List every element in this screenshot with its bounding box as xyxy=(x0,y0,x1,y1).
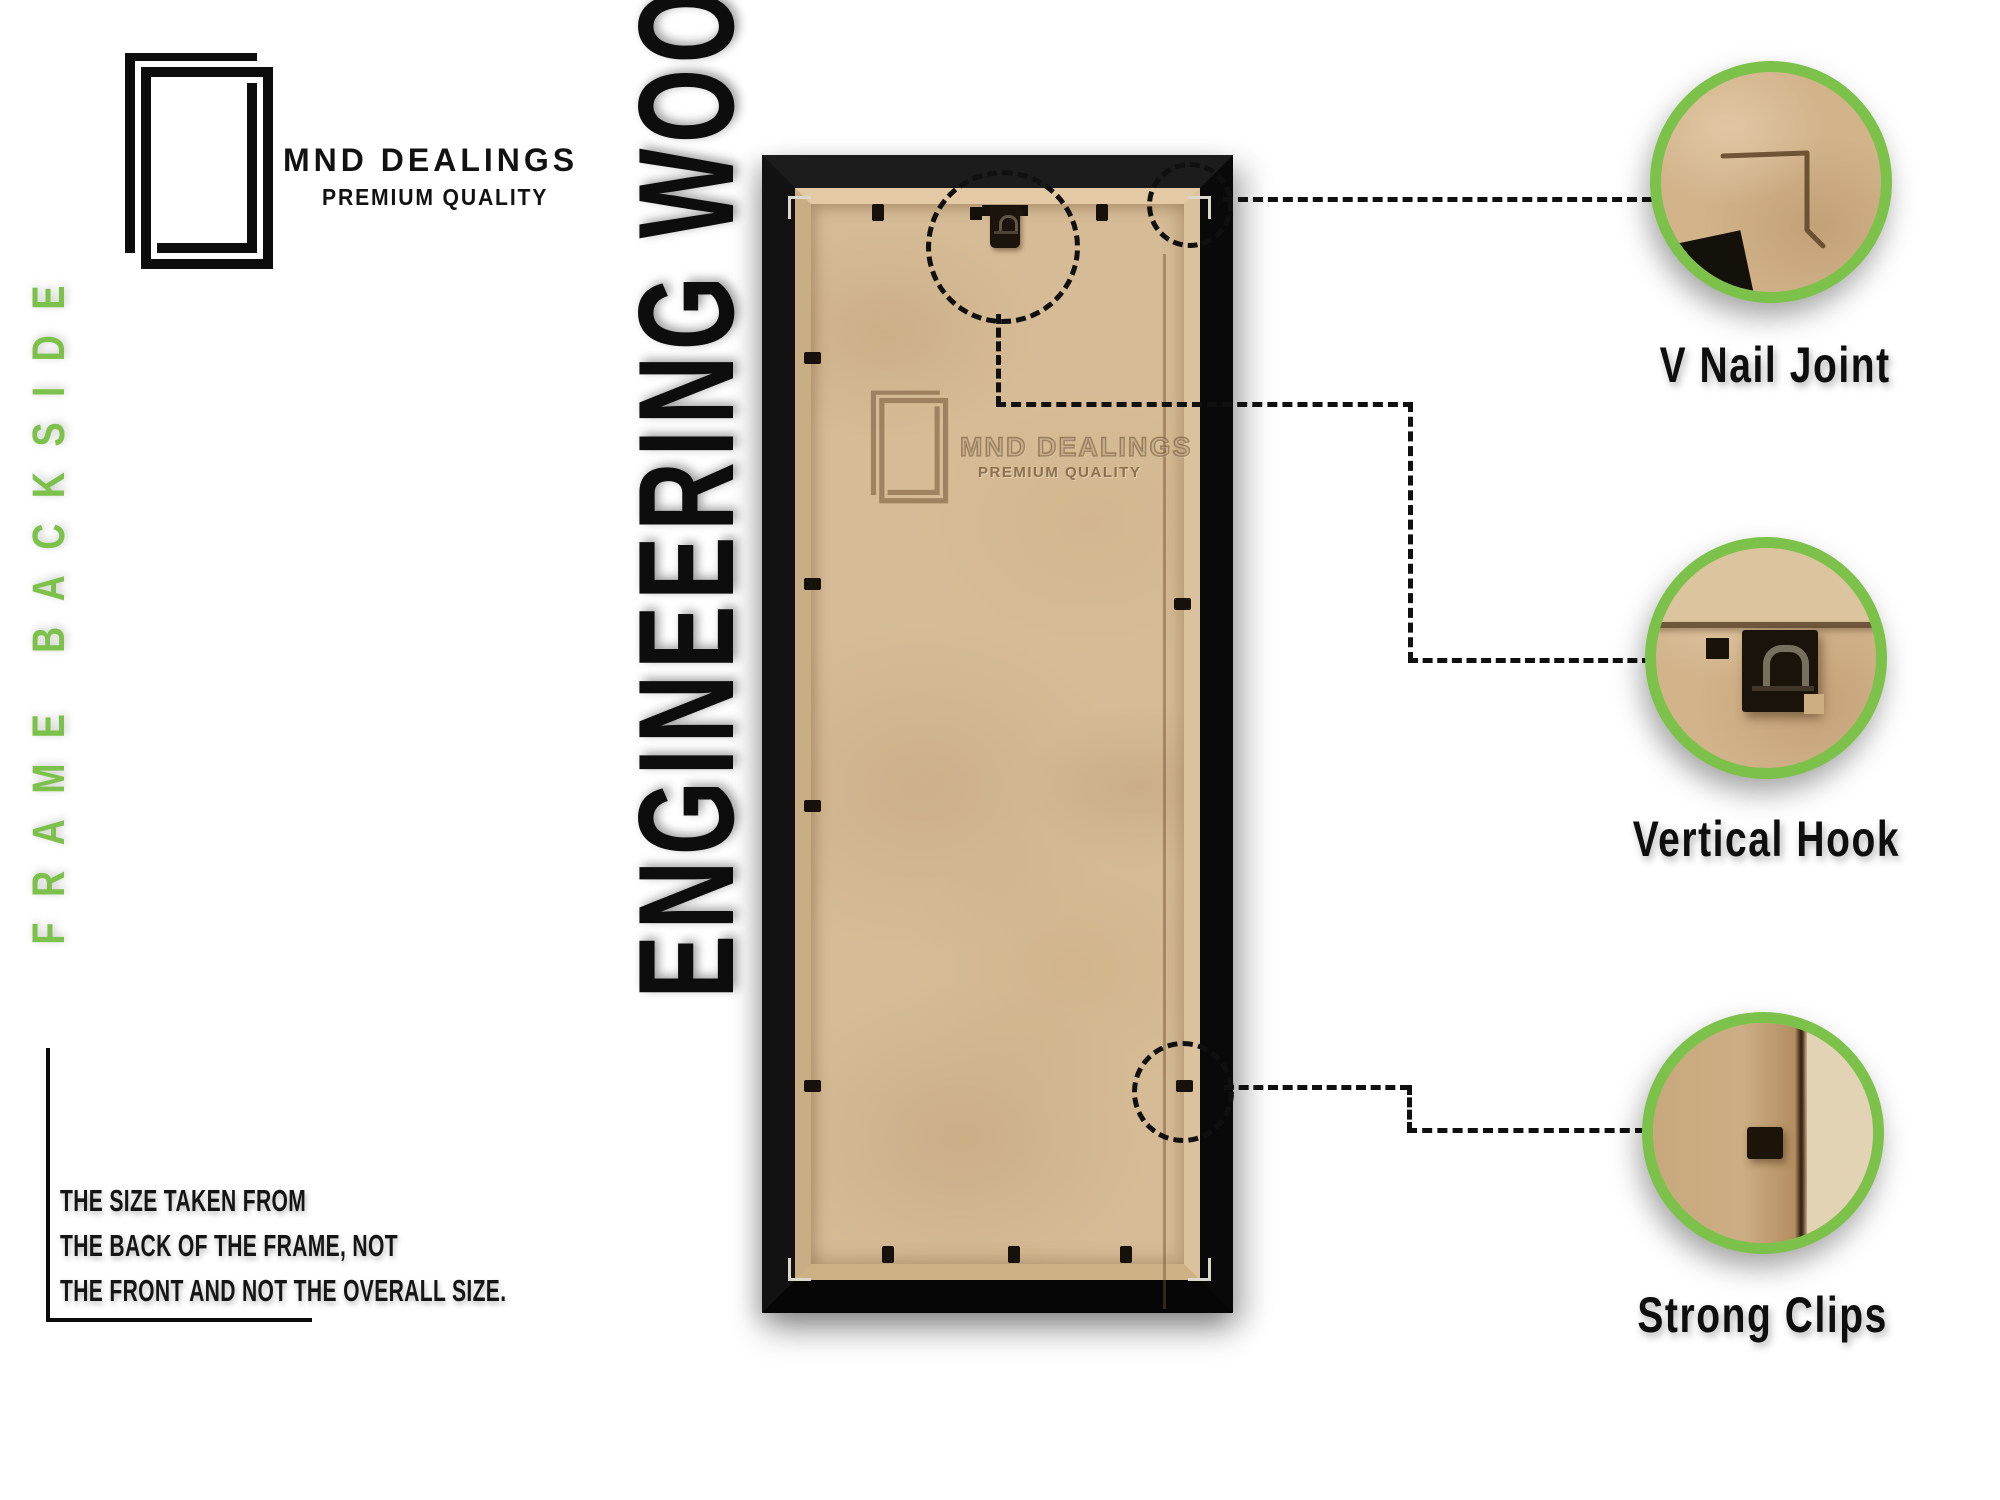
callout-strong-clips xyxy=(1642,1012,1884,1254)
clip xyxy=(1174,598,1191,610)
board-top-edge xyxy=(1656,548,1876,626)
clip xyxy=(804,1080,821,1092)
brand-logo-icon xyxy=(120,48,276,274)
clip xyxy=(872,204,884,221)
watermark-brand-name: MND DEALINGS xyxy=(960,432,1193,463)
size-note-line-3: THE FRONT AND NOT THE OVERALL SIZE. xyxy=(60,1273,506,1309)
brand-tagline: PREMIUM QUALITY xyxy=(322,184,548,211)
vertical-hook-arch xyxy=(1763,645,1809,690)
connector-clip-seg2 xyxy=(1407,1085,1412,1132)
callout-vertical-hook xyxy=(1645,537,1887,779)
connector-clip-seg1 xyxy=(1224,1085,1410,1090)
zoom-circle-corner xyxy=(1147,162,1233,248)
nail-head xyxy=(1706,638,1729,659)
board-edge-groove xyxy=(1163,254,1166,1309)
strong-clip xyxy=(1747,1127,1783,1159)
clip xyxy=(1008,1246,1020,1263)
board-groove xyxy=(1656,622,1876,628)
connector-hook-seg1 xyxy=(996,314,1001,406)
zoom-circle-hook xyxy=(926,170,1080,324)
size-note-line-2: THE BACK OF THE FRAME, NOT xyxy=(60,1228,398,1264)
frame-backside-label: FRAME BACKSIDE xyxy=(19,270,79,1030)
size-note-line-1: THE SIZE TAKEN FROM xyxy=(60,1183,306,1219)
connector-v-nail xyxy=(1223,197,1652,202)
connector-hook-seg4 xyxy=(1408,658,1652,663)
vertical-hook-notch xyxy=(1804,694,1824,714)
connector-hook-seg3 xyxy=(1408,402,1413,662)
brand-name: MND DEALINGS xyxy=(283,142,578,179)
clip xyxy=(882,1246,894,1263)
engineering-wood-label: ENGINEERING WOOD xyxy=(631,212,741,1232)
lip-surface xyxy=(1807,1023,1884,1243)
size-note: THE SIZE TAKEN FROM THE BACK OF THE FRAM… xyxy=(60,1183,716,1318)
watermark-tagline: PREMIUM QUALITY xyxy=(978,464,1141,481)
clip xyxy=(804,800,821,812)
vertical-hook-slot xyxy=(1752,686,1814,691)
corner-bracket xyxy=(1188,1258,1211,1281)
callout-v-nail-joint-label: V Nail Joint xyxy=(1545,336,2000,394)
board-edge-groove xyxy=(1795,1023,1807,1243)
clip xyxy=(1096,204,1108,221)
callout-vertical-hook-label: Vertical Hook xyxy=(1536,810,1996,868)
watermark-logo-icon xyxy=(868,388,950,506)
connector-hook-seg2 xyxy=(996,402,1413,407)
clip xyxy=(1120,1246,1132,1263)
corner-bracket xyxy=(788,196,811,219)
clip xyxy=(804,352,821,364)
product-infographic: MND DEALINGS PREMIUM QUALITY FRAME BACKS… xyxy=(0,0,2000,1500)
zoom-circle-clip xyxy=(1132,1041,1234,1143)
callout-strong-clips-label: Strong Clips xyxy=(1533,1286,1993,1344)
clip xyxy=(804,578,821,590)
corner-bracket xyxy=(788,1258,811,1281)
callout-v-nail-joint xyxy=(1650,61,1892,303)
connector-clip-seg3 xyxy=(1407,1128,1645,1133)
